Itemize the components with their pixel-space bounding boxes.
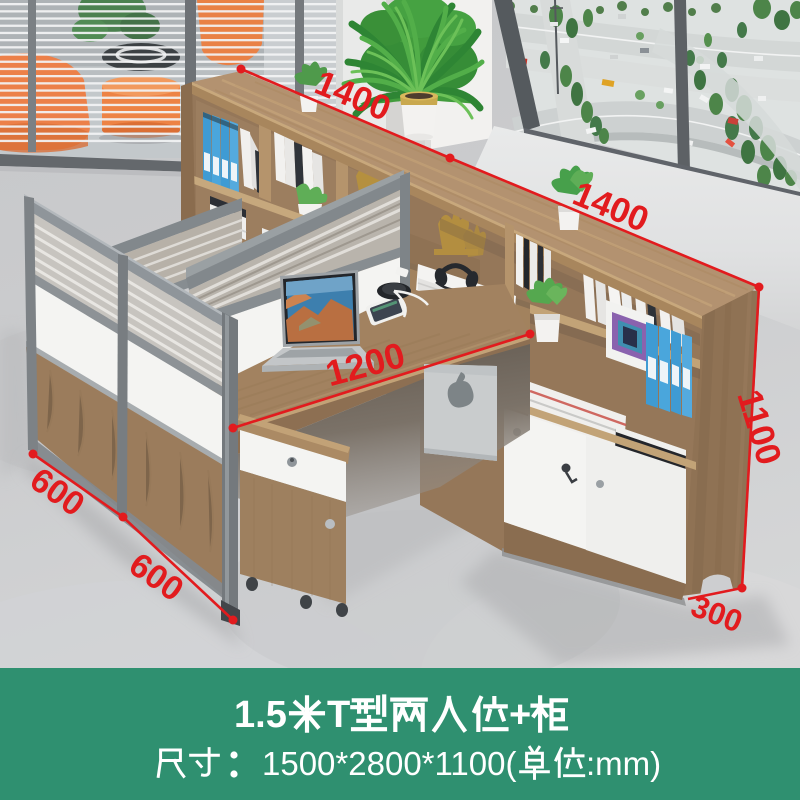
svg-text:1500*2800*1100(: 1500*2800*1100( <box>262 745 516 782</box>
svg-text:1.5: 1.5 <box>234 694 287 736</box>
svg-text::mm): :mm) <box>586 745 661 782</box>
svg-text:T: T <box>327 694 350 736</box>
svg-text:+: + <box>509 694 531 736</box>
